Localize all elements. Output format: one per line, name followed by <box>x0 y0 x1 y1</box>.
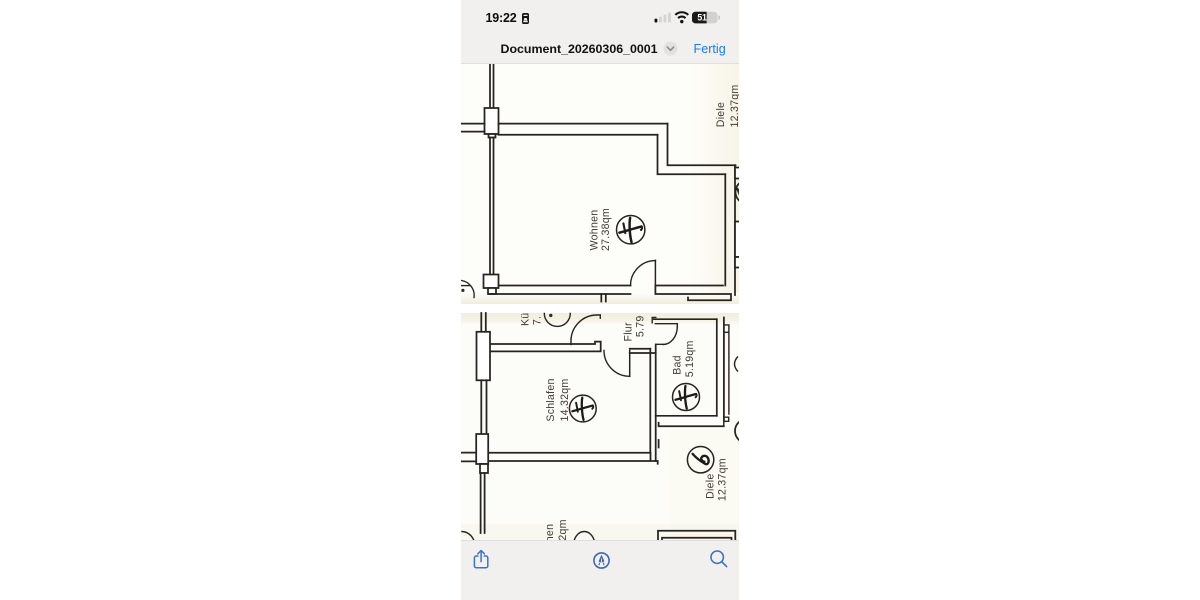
svg-text:Diele: Diele <box>705 473 717 498</box>
svg-text:5.19qm: 5.19qm <box>684 340 696 377</box>
svg-text:5.79: 5.79 <box>635 315 647 337</box>
svg-text:Diele: Diele <box>715 102 727 127</box>
svg-text:7.: 7. <box>532 316 544 325</box>
svg-text:Schlafen: Schlafen <box>545 378 557 421</box>
svg-text:Bad: Bad <box>672 355 684 375</box>
svg-text:nen: nen <box>544 524 556 540</box>
svg-text:2qm: 2qm <box>557 519 569 540</box>
svg-text:27.38qm: 27.38qm <box>600 208 612 251</box>
svg-text:14.32qm: 14.32qm <box>559 379 571 422</box>
svg-text:Kü: Kü <box>520 313 532 326</box>
svg-text:12.37qm: 12.37qm <box>729 85 739 128</box>
svg-text:12.37qm: 12.37qm <box>717 458 729 501</box>
svg-text:51: 51 <box>697 12 707 22</box>
svg-text:Flur: Flur <box>623 322 635 341</box>
svg-text:Wohnen: Wohnen <box>589 210 601 251</box>
